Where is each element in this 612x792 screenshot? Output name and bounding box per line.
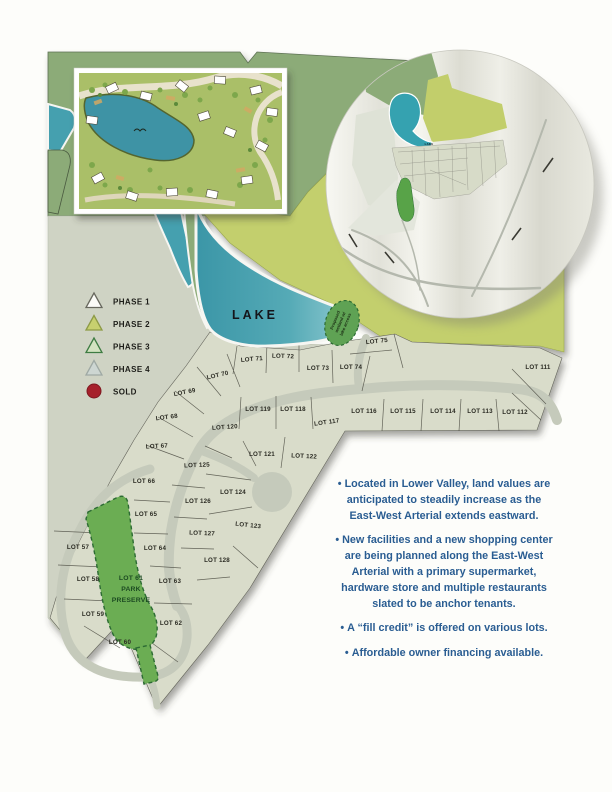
lot-label: LOT 127 <box>189 530 215 538</box>
note-line: hardware store and multiple restaurants <box>316 581 572 597</box>
lot-label: LOT 60 <box>109 639 132 646</box>
lot-label: LOT 121 <box>249 451 275 458</box>
lot-label: LOT 67 <box>146 442 169 450</box>
mini-lake-label: LAKE <box>425 142 434 146</box>
aerial-inset-art <box>79 73 282 209</box>
lot-label: LOT 122 <box>291 452 318 460</box>
bullet-marker: • <box>345 647 349 659</box>
lot-label: LOT 112 <box>502 409 528 416</box>
lot-label: LOT 57 <box>67 544 90 551</box>
lot-label: LOT 118 <box>280 406 306 413</box>
note-line: •A “fill credit” is offered on various l… <box>316 621 572 637</box>
lot-label: LOT 124 <box>220 489 246 496</box>
legend-label: PHASE 1 <box>113 298 150 307</box>
note: •Located in Lower Valley, land values ar… <box>316 477 572 524</box>
notes-list: •Located in Lower Valley, land values ar… <box>316 477 572 671</box>
note-line: •New facilities and a new shopping cente… <box>316 533 572 549</box>
lot-label: LOT 64 <box>144 545 167 552</box>
bullet-marker: • <box>338 478 342 490</box>
lot-label: LOT 72 <box>272 353 295 361</box>
lot-label: LOT 114 <box>430 408 456 415</box>
note-line: Arterial with a primary supermarket, <box>316 565 572 581</box>
lot-label: LOT 62 <box>160 620 183 627</box>
park-label: LOT 61 <box>119 575 143 582</box>
lot-label: LOT 125 <box>184 462 210 470</box>
brochure-page: LAKE Proposedwetland w/lake access LOT 6… <box>0 0 612 792</box>
lake-label: LAKE <box>232 308 278 322</box>
bullet-marker: • <box>340 622 344 634</box>
legend-label: SOLD <box>113 388 137 397</box>
lot-label: LOT 73 <box>307 365 330 372</box>
note: •A “fill credit” is offered on various l… <box>316 621 572 637</box>
lot-label: LOT 111 <box>525 364 550 371</box>
legend-label: PHASE 3 <box>113 343 150 352</box>
lot-label: LOT 113 <box>467 408 493 415</box>
park-label: PARK <box>121 586 141 593</box>
lot-label: LOT 63 <box>159 578 182 585</box>
legend-label: PHASE 4 <box>113 365 150 374</box>
legend-swatch-sold <box>87 384 101 398</box>
lot-label: LOT 66 <box>133 478 156 485</box>
lot-label: LOT 126 <box>185 498 211 505</box>
note-line: •Affordable owner financing available. <box>316 646 572 662</box>
note-line: East-West Arterial extends eastward. <box>316 509 572 525</box>
culdesac-bulb <box>252 472 292 512</box>
note: •Affordable owner financing available. <box>316 646 572 662</box>
lot-label: LOT 115 <box>390 408 416 415</box>
park-label: PRESERVE <box>112 597 151 604</box>
aerial-inset <box>74 68 287 214</box>
note-line: are being planned along the East-West <box>316 549 572 565</box>
site-plan-map: LAKE Proposedwetland w/lake access LOT 6… <box>0 0 612 792</box>
note-line: slated to be anchor tenants. <box>316 597 572 613</box>
bullet-marker: • <box>335 534 339 546</box>
legend-label: PHASE 2 <box>113 320 150 329</box>
lot-label: LOT 116 <box>351 408 377 415</box>
note: •New facilities and a new shopping cente… <box>316 533 572 612</box>
lot-label: LOT 58 <box>77 576 100 583</box>
lot-label: LOT 119 <box>245 406 271 413</box>
lot-label: LOT 128 <box>204 557 230 564</box>
lot-label: LOT 65 <box>135 511 158 518</box>
lot-label: LOT 74 <box>340 364 363 371</box>
note-line: •Located in Lower Valley, land values ar… <box>316 477 572 493</box>
note-line: anticipated to steadily increase as the <box>316 493 572 509</box>
lot-label: LOT 59 <box>82 611 105 618</box>
